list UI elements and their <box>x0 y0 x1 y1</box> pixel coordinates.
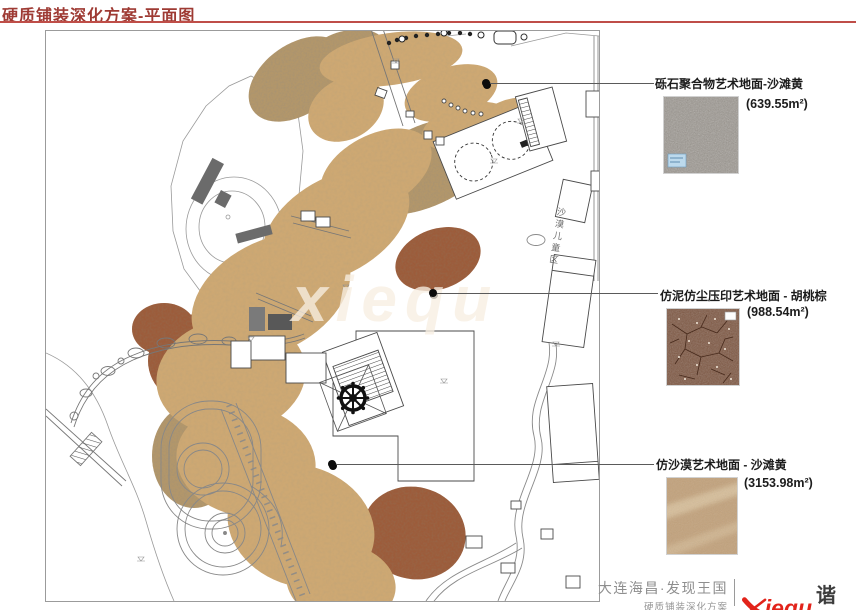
callout-1-area: (639.55m²) <box>746 97 808 111</box>
callout-3-area: (3153.98m²) <box>744 476 813 490</box>
logo-chinese-text: 谐趣 <box>816 579 856 610</box>
logo-x-swoosh-icon <box>742 596 767 610</box>
leader-line-1 <box>486 83 654 84</box>
footer-project-block: 大连海昌·发现王国 硬质铺装深化方案 <box>556 578 728 610</box>
callout-2-area: (988.54m²) <box>747 305 809 319</box>
leader-dot-2 <box>429 289 437 297</box>
callout-3-label: 仿沙漠艺术地面 - 沙滩黄 <box>656 456 787 473</box>
logo-latin-text: iequ <box>765 595 812 610</box>
plan-sheet: 硬质铺装深化方案-平面图 <box>0 0 856 610</box>
callout-3-swatch-sand <box>666 477 738 555</box>
leader-dot-1 <box>482 79 490 87</box>
callout-1-label: 砾石聚合物艺术地面-沙滩黄 <box>655 75 803 92</box>
leader-dot-3 <box>328 460 336 468</box>
title-underline <box>0 21 856 23</box>
callout-2-label: 仿泥仿尘压印艺术地面 - 胡桃棕 <box>660 287 827 304</box>
footer-subtitle: 硬质铺装深化方案 <box>556 599 728 610</box>
footer-project-name: 大连海昌·发现王国 <box>556 578 728 598</box>
site-plan-drawing <box>46 31 599 601</box>
leader-line-3 <box>332 464 654 465</box>
callout-1-swatch-gravel <box>663 96 739 174</box>
site-plan-frame: 沙漠儿童区 <box>45 30 600 602</box>
footer-divider <box>734 579 735 606</box>
callout-2-swatch-mud <box>666 308 740 386</box>
leader-line-2 <box>433 293 658 294</box>
xiequ-logo: iequ 谐趣 <box>742 579 856 610</box>
